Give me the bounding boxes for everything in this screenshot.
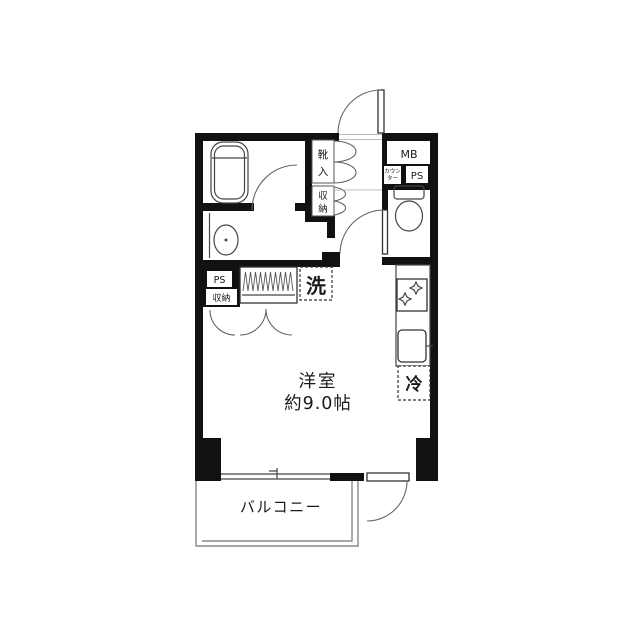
pipe-space-left-label: PS: [214, 275, 226, 286]
south-door-leaf: [367, 473, 409, 481]
pipe-space-right-label: PS: [411, 171, 423, 182]
floor-plan-image: MB カウン ター PS 靴 入 収 納 PS 収納 洗 冷 洋室 約9.0帖 …: [0, 0, 640, 640]
floor-plan: MB カウン ター PS 靴 入 収 納 PS 収納 洗 冷 洋室 約9.0帖 …: [0, 0, 640, 640]
main-room-size: 約9.0帖: [284, 394, 352, 414]
counter-label-line2: ター: [387, 174, 398, 182]
hall-storage-label-char2: 納: [318, 203, 328, 215]
meter-box-label: MB: [400, 148, 417, 161]
kitchen-sink: [398, 330, 426, 362]
toilet-door-leaf: [383, 210, 388, 254]
shoe-box-label-char2: 入: [318, 166, 329, 178]
storage-left-label: 収納: [212, 292, 230, 304]
stove: [397, 279, 427, 311]
counter-label-line1: カウン: [384, 167, 401, 175]
shoe-box-label-char1: 靴: [318, 148, 329, 161]
hall-storage-label-char1: 収: [318, 190, 328, 202]
balcony-label: バルコニー: [240, 498, 322, 516]
washing-machine-label: 洗: [306, 274, 326, 298]
refrigerator-label: 冷: [406, 374, 423, 395]
main-room-name: 洋室: [299, 372, 338, 392]
entrance-door-leaf: [378, 90, 384, 133]
basin-drain: [225, 239, 228, 242]
